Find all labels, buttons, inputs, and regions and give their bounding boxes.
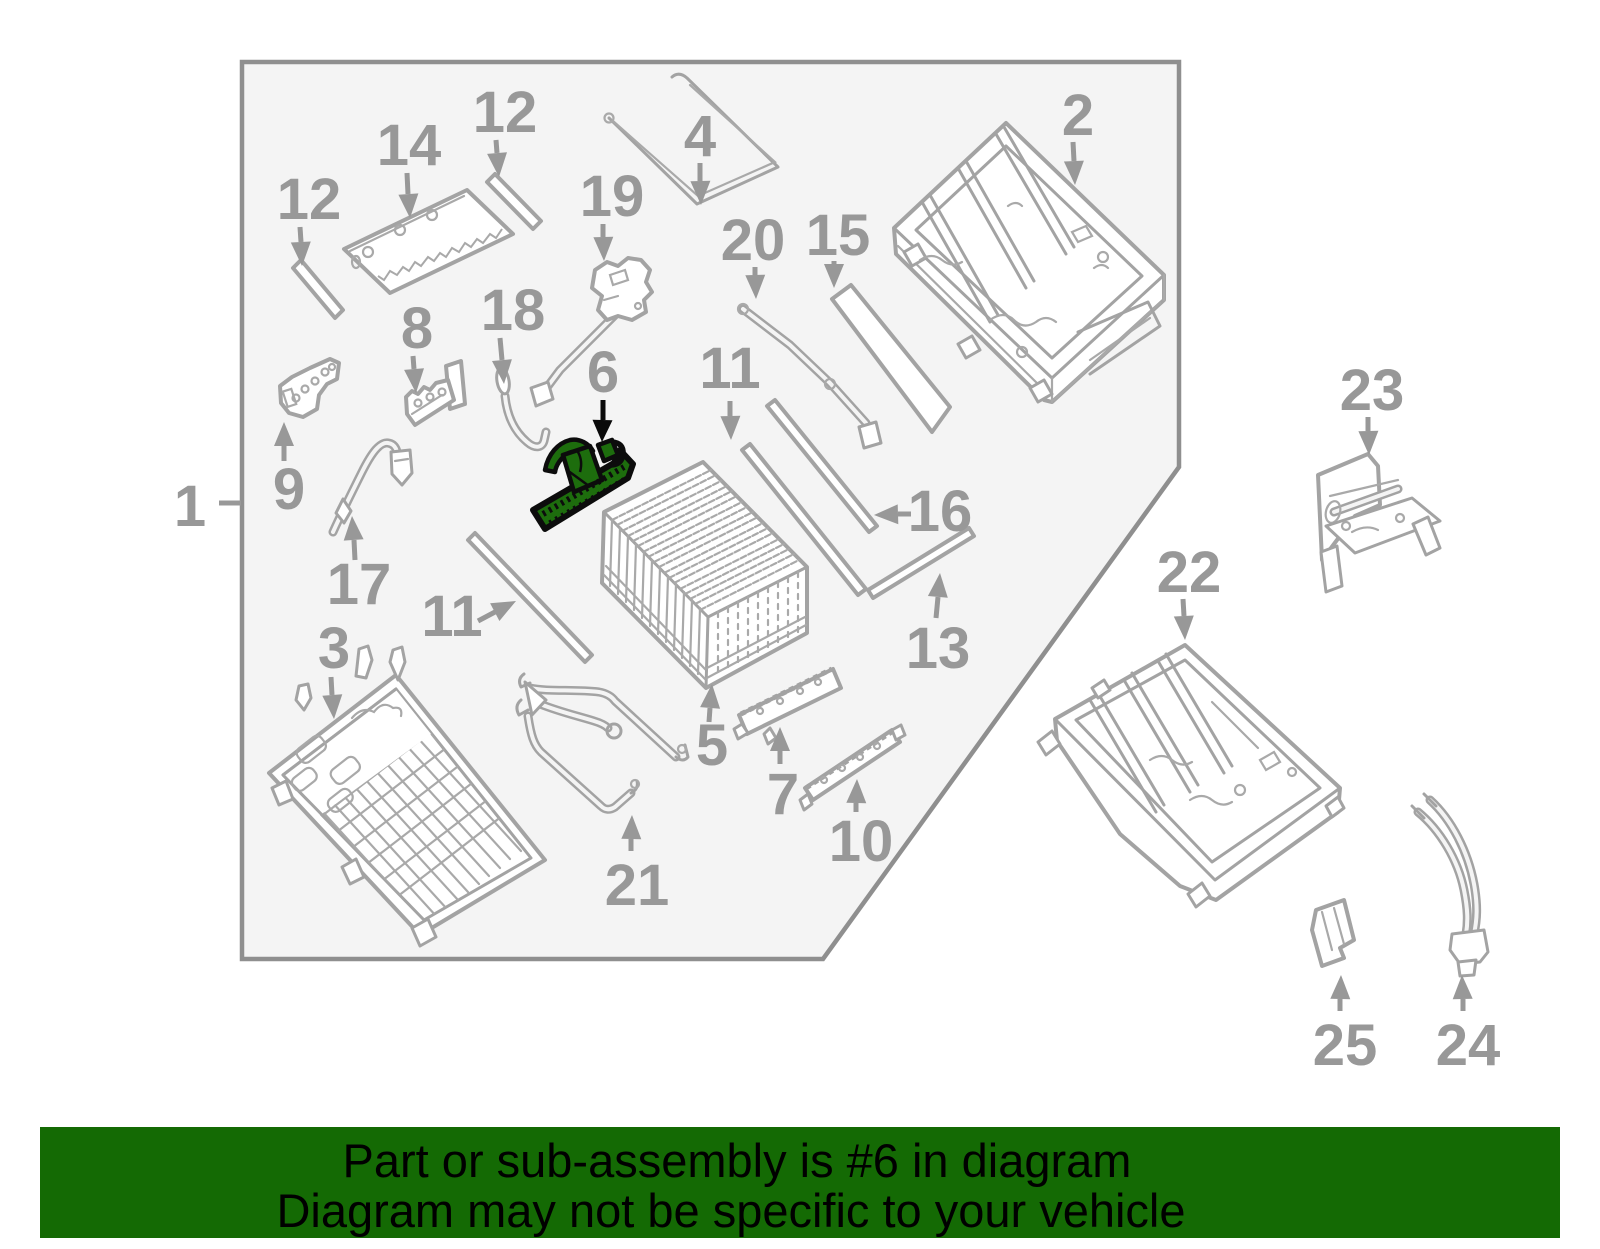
- svg-text:20: 20: [721, 208, 786, 273]
- svg-text:10: 10: [829, 809, 894, 874]
- svg-text:Part or sub-assembly is #6 in: Part or sub-assembly is #6 in diagram: [343, 1134, 1132, 1187]
- svg-text:21: 21: [605, 853, 670, 918]
- svg-text:12: 12: [277, 167, 342, 232]
- svg-text:11: 11: [699, 336, 760, 401]
- svg-text:1: 1: [174, 474, 206, 539]
- svg-text:16: 16: [908, 479, 973, 544]
- svg-text:Diagram may not be specific to: Diagram may not be specific to your vehi…: [276, 1184, 1185, 1237]
- svg-text:4: 4: [684, 104, 716, 169]
- svg-text:15: 15: [806, 203, 871, 268]
- svg-text:2: 2: [1062, 83, 1094, 148]
- svg-text:25: 25: [1313, 1013, 1378, 1078]
- svg-text:6: 6: [587, 340, 619, 405]
- svg-text:9: 9: [273, 457, 305, 522]
- svg-text:23: 23: [1340, 358, 1405, 423]
- svg-text:24: 24: [1436, 1013, 1501, 1078]
- svg-text:22: 22: [1157, 540, 1222, 605]
- svg-text:18: 18: [481, 278, 546, 343]
- svg-text:5: 5: [696, 713, 728, 778]
- svg-text:19: 19: [580, 164, 645, 229]
- svg-text:17: 17: [327, 552, 392, 617]
- svg-text:13: 13: [906, 616, 971, 681]
- svg-text:12: 12: [473, 80, 538, 145]
- svg-text:14: 14: [377, 113, 442, 178]
- svg-text:3: 3: [318, 616, 350, 681]
- svg-text:7: 7: [767, 762, 799, 827]
- svg-text:11: 11: [421, 584, 482, 649]
- svg-text:8: 8: [401, 296, 433, 361]
